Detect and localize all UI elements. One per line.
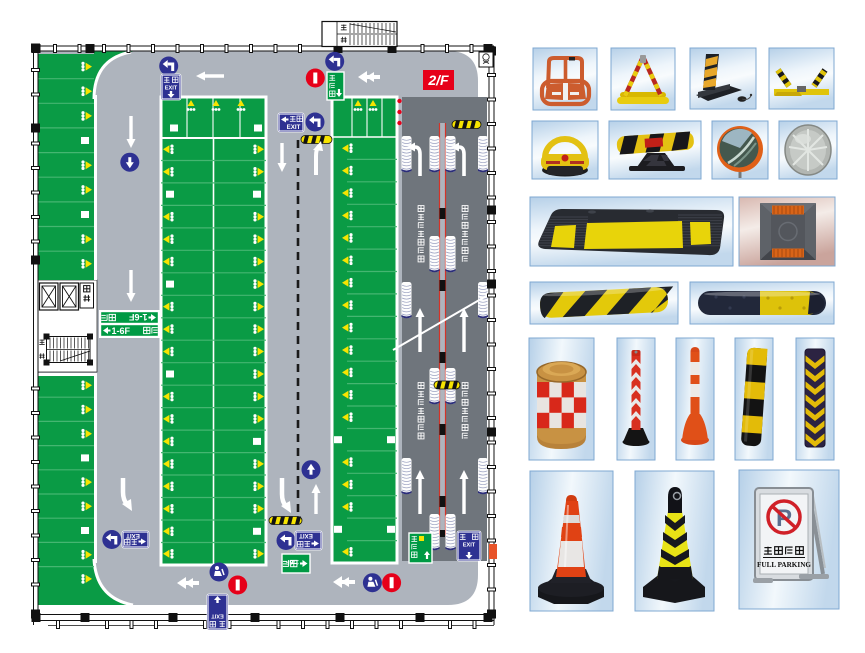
svg-text:EXIT: EXIT bbox=[126, 532, 140, 539]
svg-text:EXIT: EXIT bbox=[287, 124, 301, 131]
svg-text:EXIT: EXIT bbox=[211, 613, 224, 619]
svg-text:FULL PARKING: FULL PARKING bbox=[757, 561, 811, 569]
svg-text:2/F: 2/F bbox=[427, 72, 449, 88]
svg-text:EXIT: EXIT bbox=[463, 543, 476, 549]
svg-text:1-6F: 1-6F bbox=[128, 312, 147, 322]
svg-text:EXIT: EXIT bbox=[299, 532, 313, 539]
svg-text:1-6F: 1-6F bbox=[112, 326, 131, 336]
svg-text:EXIT: EXIT bbox=[165, 86, 178, 92]
